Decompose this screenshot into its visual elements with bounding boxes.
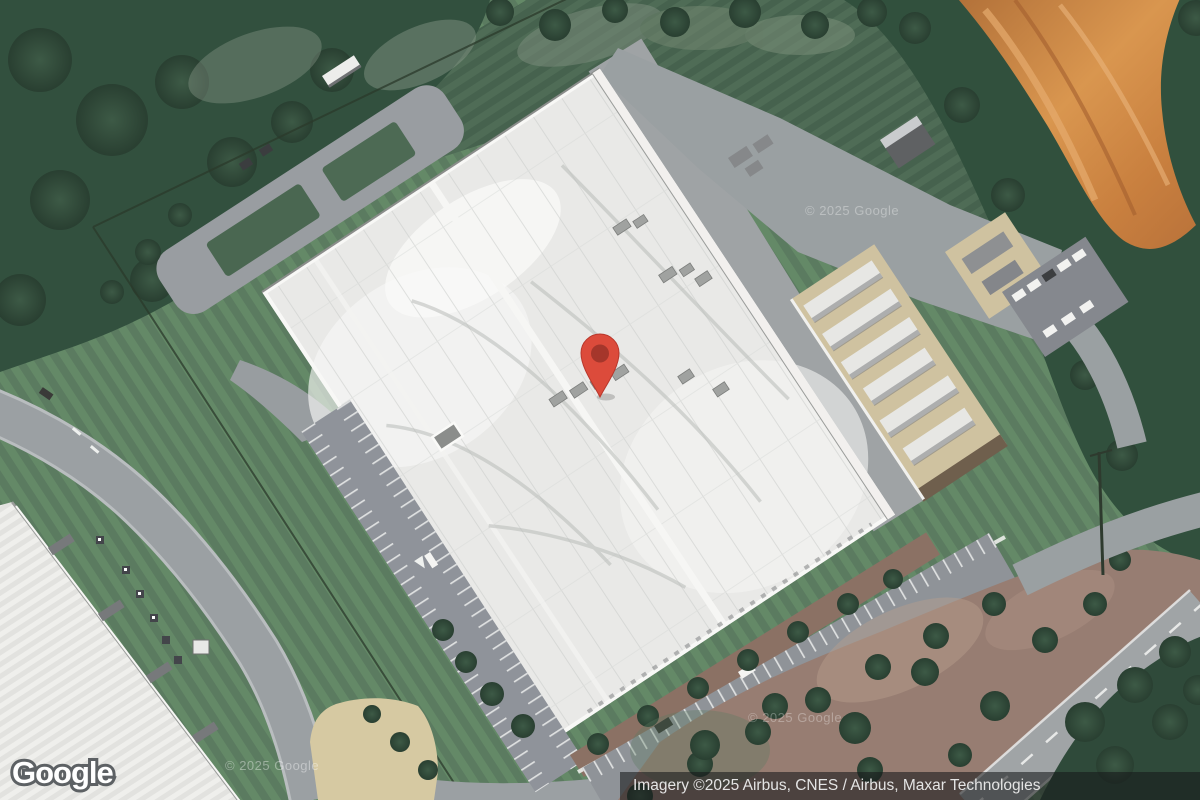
satellite-map[interactable]: © 2025 Google © 2025 Google © 2025 Googl… [0,0,1200,800]
attribution-bar: Imagery ©2025 Airbus, CNES / Airbus, Max… [620,772,1200,800]
google-logo-text: Google [12,755,113,790]
google-logo[interactable]: Google Google [12,753,113,793]
attribution-text: Imagery ©2025 Airbus, CNES / Airbus, Max… [633,777,1040,794]
location-pin-icon[interactable] [577,331,623,401]
